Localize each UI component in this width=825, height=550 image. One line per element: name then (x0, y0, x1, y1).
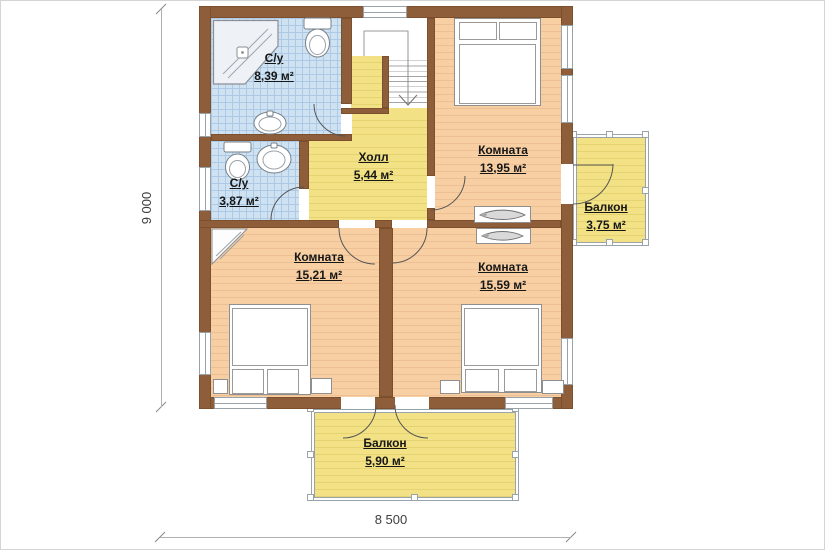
pillow (267, 369, 299, 394)
window (199, 113, 211, 137)
window (214, 397, 267, 409)
railing-post (307, 494, 314, 501)
window (561, 25, 573, 69)
wall-stair-pocket-bottom (341, 108, 389, 114)
room-area: 3,87 м² (201, 193, 277, 211)
bed (454, 18, 541, 106)
wall-bedrooms-divider (379, 228, 393, 397)
room-area: 5,90 м² (347, 453, 423, 471)
room-label-bath-small: С/у 3,87 м² (201, 175, 277, 210)
nightstand (213, 379, 228, 394)
pillow (465, 369, 499, 392)
room-area: 15,59 м² (465, 277, 541, 295)
pillow (459, 22, 497, 40)
railing-post (642, 187, 649, 194)
room-label-hall: Холл 5,44 м² (336, 149, 411, 184)
staircase-treads (389, 56, 427, 106)
bed (461, 304, 542, 393)
wall-middle-left (199, 220, 339, 228)
railing-post (642, 131, 649, 138)
hall-floor-strip (352, 114, 427, 141)
room-label-balcony-right: Балкон 3,75 м² (568, 199, 644, 234)
room-label-bedroom-left: Комната 15,21 м² (281, 249, 357, 284)
door-opening-balcony-right-door (395, 397, 429, 409)
mattress (464, 308, 539, 366)
railing-post (606, 131, 613, 138)
railing-post (512, 494, 519, 501)
wall-bath-large-bottom (211, 134, 352, 141)
room-name: Холл (336, 149, 411, 167)
railing-post (606, 239, 613, 246)
mattress (232, 308, 308, 366)
mattress (459, 44, 536, 104)
wall-hall-bedroomtop-stub (427, 208, 435, 220)
railing-post (411, 494, 418, 501)
room-label-bedroom-right: Комната 15,59 м² (465, 259, 541, 294)
floor-plan: 9 000 8 500 С/у 8,39 м² С/у 3,87 м² Холл… (0, 0, 825, 550)
pillow (499, 22, 537, 40)
railing-post (642, 239, 649, 246)
window (505, 397, 553, 409)
room-name: Комната (465, 142, 541, 160)
room-name: Комната (465, 259, 541, 277)
room-area: 5,44 м² (336, 167, 411, 185)
room-label-bedroom-top: Комната 13,95 м² (465, 142, 541, 177)
room-area: 8,39 м² (236, 68, 312, 86)
nightstand (440, 380, 460, 394)
wall-bath-large-right (341, 18, 352, 104)
railing-post (307, 451, 314, 458)
hall-floor-under-stairs (389, 108, 427, 114)
wall-stair-pocket-side (382, 56, 389, 108)
window (561, 338, 573, 385)
pillow (504, 369, 537, 392)
room-name: Комната (281, 249, 357, 267)
nightstand (311, 378, 332, 394)
dresser (476, 228, 531, 244)
pillow (232, 369, 264, 394)
room-label-bath-large: С/у 8,39 м² (236, 50, 312, 85)
door-opening-balcony-left-door (341, 397, 375, 409)
dimension-height: 9 000 (132, 186, 162, 230)
room-name: Балкон (568, 199, 644, 217)
room-area: 15,21 м² (281, 267, 357, 285)
room-area: 13,95 м² (465, 160, 541, 178)
window (561, 75, 573, 123)
stairwell-outline (364, 31, 408, 56)
room-name: С/у (201, 175, 277, 193)
room-label-balcony-bottom: Балкон 5,90 м² (347, 435, 423, 470)
stair-pocket-floor (351, 56, 382, 108)
railing-post (512, 451, 519, 458)
room-name: Балкон (347, 435, 423, 453)
bed (229, 304, 311, 395)
dimension-line-horizontal (160, 537, 571, 538)
dresser (474, 206, 531, 223)
dimension-width: 8 500 (339, 512, 443, 527)
room-name: С/у (236, 50, 312, 68)
wall-hall-bedroomtop (427, 18, 435, 176)
window (363, 6, 407, 18)
nightstand (542, 380, 564, 394)
wall-middle-post (375, 220, 392, 228)
door-opening-balcony-right (561, 164, 573, 204)
window (199, 332, 211, 375)
room-area: 3,75 м² (568, 217, 644, 235)
wall-bath-small-right (299, 141, 309, 189)
